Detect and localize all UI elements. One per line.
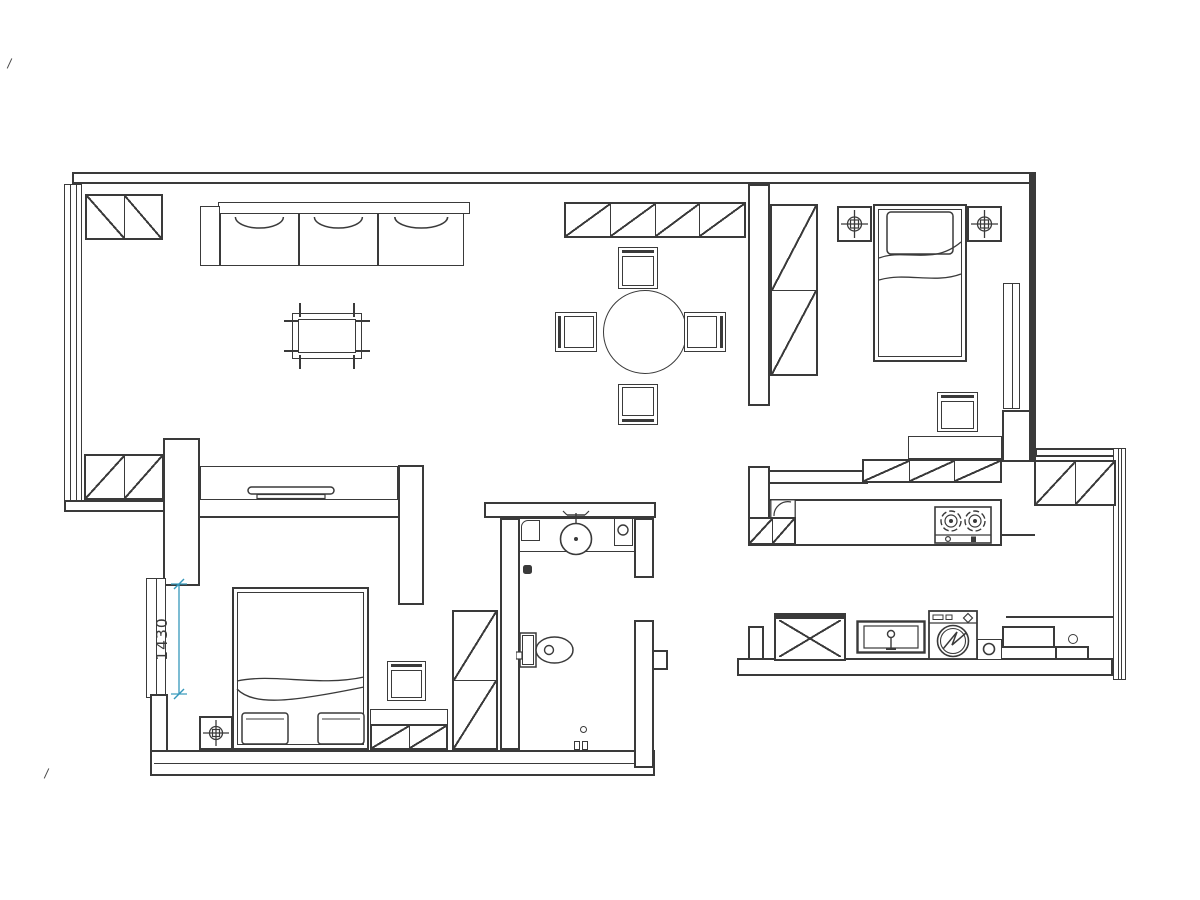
coffee-table-tick	[353, 303, 355, 317]
shower-fitting	[574, 741, 580, 750]
vanity-box-right	[614, 518, 633, 546]
kitchen-corner-unit	[770, 499, 796, 519]
laundry-sink	[856, 620, 926, 654]
ac-unit	[774, 613, 846, 661]
stray-mark	[7, 58, 13, 69]
line-laundry-top	[1006, 616, 1114, 618]
shower-fitting	[582, 741, 588, 750]
wall-step-b	[1002, 626, 1055, 648]
bedroom2-desk	[908, 436, 1002, 459]
bay-window-cabinet	[84, 454, 164, 500]
sofa	[200, 202, 470, 266]
bedroom2-chair	[937, 392, 978, 432]
wall-top	[72, 172, 1035, 184]
dining-sideboard	[564, 202, 746, 238]
toilet	[516, 628, 578, 672]
wall-bath-door-stop	[652, 650, 668, 670]
dining-chair-west	[555, 312, 597, 352]
floor-plan-canvas: 1430	[0, 0, 1200, 900]
coffee-table-tick	[299, 303, 301, 317]
washing-machine	[928, 610, 978, 660]
entry-cabinet	[85, 194, 163, 240]
wash-basin	[554, 510, 598, 558]
vanity-box-left	[521, 520, 540, 541]
line-counter-ext	[1002, 534, 1035, 536]
balcony-cabinet	[1034, 460, 1116, 506]
bedroom1-nightstand	[199, 716, 233, 750]
wall-living-bed1	[198, 498, 424, 518]
sofa-cushion	[220, 213, 299, 266]
wall-bath-east-lower	[634, 620, 654, 768]
dining-chair-south	[618, 384, 658, 425]
tv	[246, 486, 336, 500]
dining-table	[603, 290, 687, 374]
bedroom2-cabinet-row	[862, 459, 1002, 483]
dimension-label: 1430	[152, 599, 172, 679]
wall-step-c	[1055, 646, 1089, 660]
window-bed2-east	[1003, 283, 1020, 409]
wall-bed1-door-jamb	[398, 465, 424, 605]
sofa-cushion	[378, 213, 464, 266]
bedroom1-dresser	[370, 709, 448, 750]
floor-drain-box	[977, 639, 1002, 660]
bedroom2-nightstand-left	[837, 206, 872, 242]
bedroom1-bed	[232, 587, 369, 750]
kitchen-base-cabinet	[748, 517, 796, 545]
window-livingroom-west	[64, 184, 82, 508]
wall-south-west-wing	[150, 750, 655, 776]
bedroom2-bed	[873, 204, 967, 362]
wall-bath-east-upper	[634, 518, 654, 578]
floor-drain-bath	[523, 565, 532, 574]
bedroom1-wardrobe	[452, 610, 498, 750]
sofa-seats	[220, 213, 464, 266]
bedroom1-chair	[387, 661, 426, 701]
stray-mark	[44, 768, 50, 779]
wall-east-outer	[1029, 172, 1036, 462]
wall-dining-bed2	[748, 184, 770, 406]
shower-fitting-dot	[580, 726, 587, 733]
coffee-table-tick	[284, 350, 298, 352]
wall-step-a	[748, 626, 764, 660]
wall-pier-bed1	[163, 438, 200, 586]
sofa-cushion	[299, 213, 378, 266]
coffee-table-tick	[284, 320, 298, 322]
floor-drain	[1068, 634, 1078, 644]
coffee-table	[292, 313, 362, 359]
sofa-arm-left	[200, 206, 220, 266]
wall-kitchen-north	[768, 470, 868, 484]
bedroom2-nightstand-right	[967, 206, 1002, 242]
coffee-table-tick	[356, 320, 370, 322]
coffee-table-top	[298, 319, 356, 353]
hall-wardrobe	[770, 204, 818, 376]
coffee-table-tick	[356, 350, 370, 352]
coffee-table-tick	[353, 355, 355, 369]
dining-chair-north	[618, 247, 658, 289]
wall-balcony-north	[1035, 448, 1119, 457]
coffee-table-tick	[299, 355, 301, 369]
gas-stove	[934, 506, 992, 544]
dining-chair-east	[684, 312, 726, 352]
